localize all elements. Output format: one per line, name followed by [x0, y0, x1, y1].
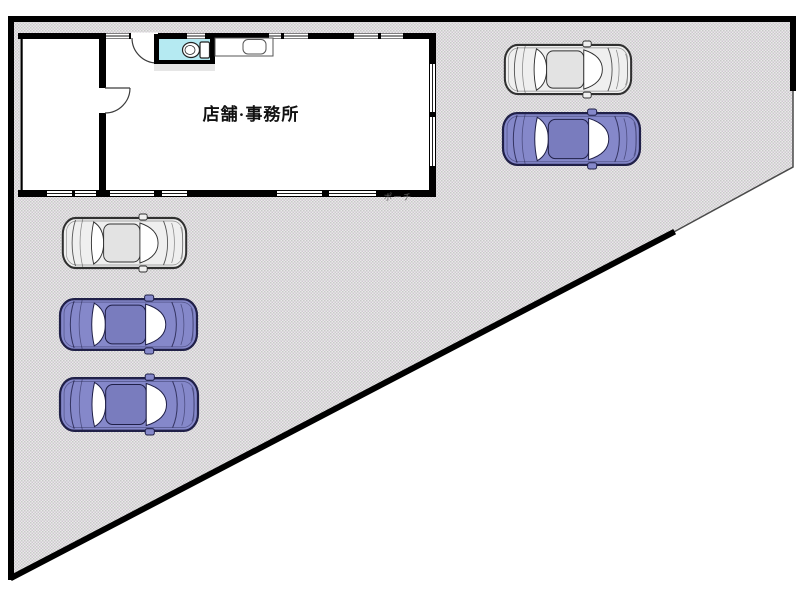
car-left-blue-2: [60, 374, 198, 435]
window-mark: [106, 34, 129, 39]
car-top-right-blue: [503, 109, 640, 169]
window-mark: [430, 64, 435, 112]
site-plan-canvas: 店舗·事務所 ポーチ: [0, 0, 800, 600]
window-mark: [187, 34, 205, 39]
site-plan: 店舗·事務所 ポーチ: [0, 0, 800, 600]
window-mark: [47, 191, 72, 196]
window-mark: [75, 191, 96, 196]
wall-right: [429, 33, 436, 197]
toilet-tank-icon: [200, 42, 210, 58]
sink-basin-icon: [243, 40, 266, 55]
window-mark: [162, 191, 187, 196]
porch-label: ポーチ: [384, 193, 413, 203]
wall-middle: [99, 33, 106, 197]
car-left-blue-1: [60, 295, 197, 354]
window-mark: [354, 34, 378, 39]
building: 店舗·事務所 ポーチ: [18, 33, 436, 204]
car-top-right-gray: [505, 41, 631, 98]
car-left-gray: [63, 214, 186, 272]
window-mark: [381, 34, 403, 39]
window-mark: [277, 191, 322, 196]
window-mark: [329, 191, 376, 196]
toilet-room-shadow: [154, 64, 215, 71]
door-opening-middle-wall: [99, 88, 107, 113]
toilet-room: [154, 34, 215, 71]
window-mark: [284, 34, 308, 39]
sink-counter: [215, 38, 273, 56]
building-label: 店舗·事務所: [203, 104, 300, 124]
wall-left: [21, 33, 23, 197]
window-mark: [110, 191, 154, 196]
door-opening-toilet: [131, 33, 158, 40]
window-mark: [430, 117, 435, 166]
